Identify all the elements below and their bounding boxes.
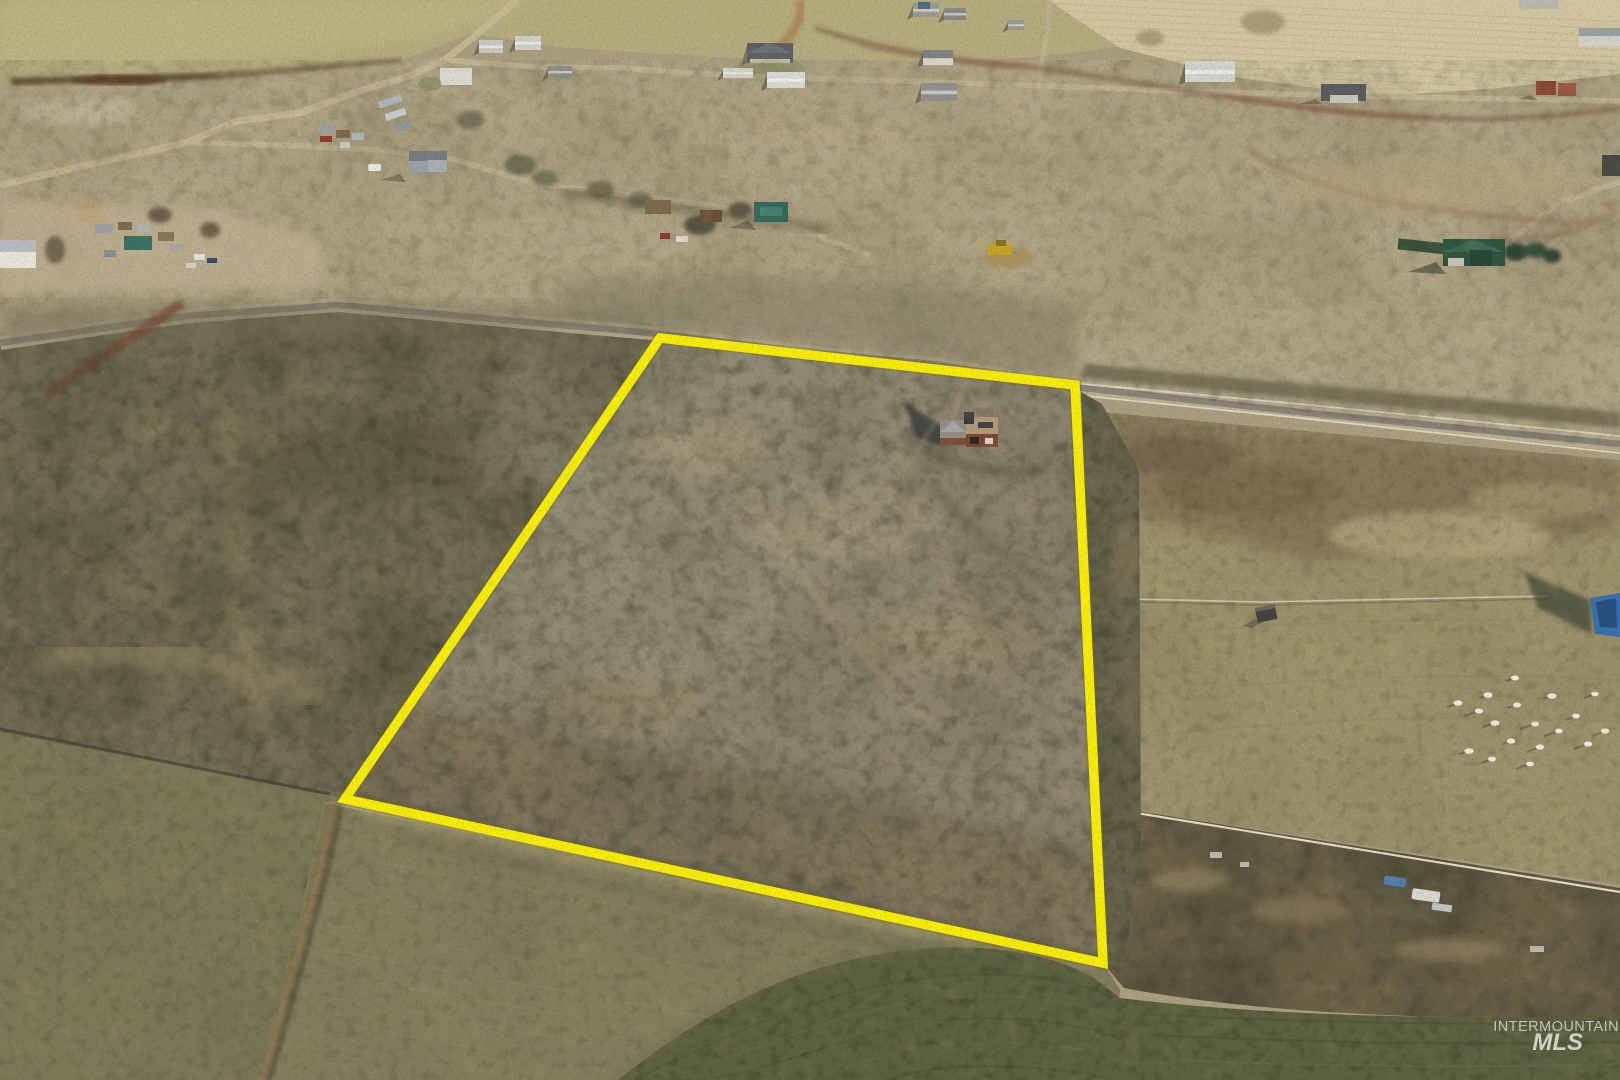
svg-text:MLS: MLS	[1532, 1029, 1583, 1056]
